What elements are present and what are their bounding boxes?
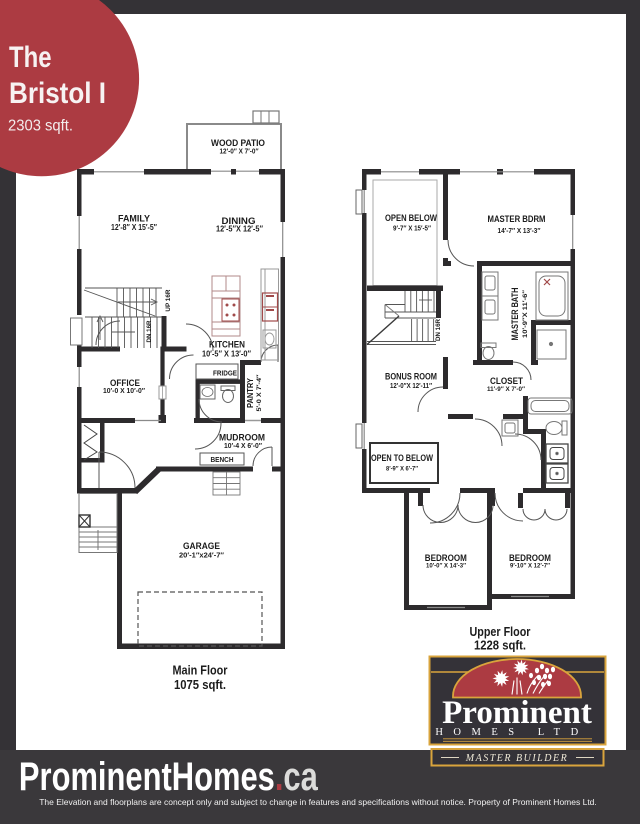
svg-text:OPEN TO BELOW: OPEN TO BELOW (371, 453, 434, 463)
svg-text:10′-5″ X 13′-0″: 10′-5″ X 13′-0″ (202, 350, 251, 359)
svg-text:Upper Floor: Upper Floor (470, 625, 531, 639)
svg-text:20′-1″x24′-7″: 20′-1″x24′-7″ (179, 553, 225, 560)
svg-text:8′-9″ X 6′-7″: 8′-9″ X 6′-7″ (386, 466, 419, 473)
svg-text:OPEN BELOW: OPEN BELOW (385, 213, 437, 223)
svg-text:5′-0 X 7′-4″: 5′-0 X 7′-4″ (256, 375, 263, 412)
svg-text:9′-7″ X 15′-5″: 9′-7″ X 15′-5″ (393, 226, 432, 233)
svg-text:10′-4 X 6′-0″: 10′-4 X 6′-0″ (224, 443, 263, 450)
svg-text:OFFICE: OFFICE (110, 378, 140, 388)
svg-text:12′-0″ X 7′-0″: 12′-0″ X 7′-0″ (220, 149, 260, 156)
svg-text:1075 sqft.: 1075 sqft. (174, 678, 226, 692)
svg-text:10′-0″ X 14′-3″: 10′-0″ X 14′-3″ (426, 563, 467, 570)
svg-text:14′-7″ X 13′-3″: 14′-7″ X 13′-3″ (498, 228, 542, 235)
svg-text:12′-5″X 12′-5″: 12′-5″X 12′-5″ (216, 224, 263, 233)
svg-text:WOOD PATIO: WOOD PATIO (211, 138, 265, 148)
svg-text:10′-0 X 10′-0″: 10′-0 X 10′-0″ (103, 388, 146, 395)
svg-text:MUDROOM: MUDROOM (219, 433, 265, 443)
svg-text:BENCH: BENCH (211, 455, 234, 464)
svg-text:Bristol I: Bristol I (9, 77, 106, 110)
svg-text:DN 16R: DN 16R (146, 320, 153, 342)
svg-text:PANTRY: PANTRY (245, 378, 255, 408)
svg-text:1228 sqft.: 1228 sqft. (474, 639, 526, 653)
svg-text:9′-10″ X 12′-7″: 9′-10″ X 12′-7″ (510, 563, 551, 570)
svg-text:ProminentHomes.ca: ProminentHomes.ca (19, 754, 319, 799)
svg-text:Prominent: Prominent (442, 695, 592, 731)
svg-text:12′-0″X 12′-11″: 12′-0″X 12′-11″ (390, 383, 433, 390)
svg-text:BONUS ROOM: BONUS ROOM (385, 372, 437, 382)
svg-text:FAMILY: FAMILY (118, 214, 150, 224)
svg-text:The Elevation and floorplans a: The Elevation and floorplans are concept… (39, 797, 597, 807)
svg-text:UP 16R: UP 16R (165, 289, 172, 311)
svg-text:The: The (9, 41, 52, 74)
svg-text:BEDROOM: BEDROOM (425, 553, 467, 563)
svg-text:DN 16R: DN 16R (435, 319, 442, 341)
svg-text:KITCHEN: KITCHEN (209, 340, 245, 350)
svg-text:HOMES LTD: HOMES LTD (435, 727, 588, 738)
svg-text:CLOSET: CLOSET (490, 376, 523, 386)
svg-text:10′-9″X 11′-6″: 10′-9″X 11′-6″ (522, 290, 529, 338)
svg-text:MASTER BDRM: MASTER BDRM (488, 214, 546, 224)
svg-text:BEDROOM: BEDROOM (509, 553, 551, 563)
svg-text:GARAGE: GARAGE (183, 541, 220, 551)
svg-text:11′-9″ X 7′-0″: 11′-9″ X 7′-0″ (487, 386, 526, 393)
svg-text:MASTER BUILDER: MASTER BUILDER (465, 753, 568, 764)
svg-text:Main Floor: Main Floor (173, 663, 228, 677)
svg-text:12′-8″ X 15′-5″: 12′-8″ X 15′-5″ (111, 223, 157, 232)
svg-text:2303 sqft.: 2303 sqft. (8, 118, 73, 135)
svg-text:MASTER BATH: MASTER BATH (510, 287, 520, 340)
svg-text:FRIDGE: FRIDGE (213, 369, 237, 378)
